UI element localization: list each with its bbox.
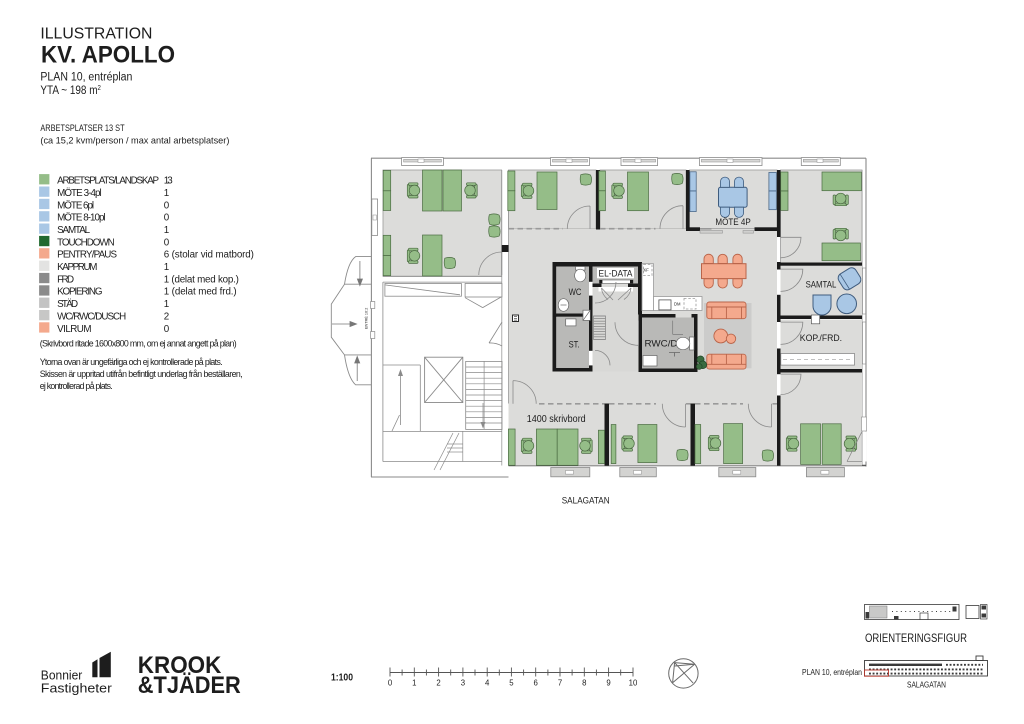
svg-text:YTA ~ 198 m2: YTA ~ 198 m2: [40, 85, 101, 97]
svg-text:SALAGATAN: SALAGATAN: [562, 496, 610, 507]
svg-text:3: 3: [461, 679, 465, 688]
svg-text:SAMTAL: SAMTAL: [57, 225, 91, 236]
svg-text:RWC/D: RWC/D: [645, 339, 678, 350]
svg-text:KOP./FRD.: KOP./FRD.: [800, 333, 842, 344]
svg-text:0: 0: [164, 200, 170, 211]
svg-text:6 (stolar vid matbord): 6 (stolar vid matbord): [164, 250, 254, 261]
svg-text:(Skrivbord ritade 1600x800 mm,: (Skrivbord ritade 1600x800 mm, om ej ann…: [40, 339, 237, 349]
svg-text:KF: KF: [644, 268, 650, 273]
svg-text:ORIENTERINGSFIGUR: ORIENTERINGSFIGUR: [865, 631, 967, 645]
svg-text:5: 5: [509, 679, 514, 688]
svg-text:STÄD: STÄD: [57, 299, 78, 310]
svg-text:9: 9: [606, 679, 610, 688]
svg-text:VILRUM: VILRUM: [57, 324, 91, 335]
svg-text:KOPIERING: KOPIERING: [57, 287, 102, 298]
svg-text:MÖTE 6pl: MÖTE 6pl: [57, 200, 94, 211]
svg-text:Fastigheter: Fastigheter: [41, 682, 112, 696]
svg-text:1: 1: [412, 679, 416, 688]
svg-text:MÖTE 4P: MÖTE 4P: [715, 217, 750, 228]
svg-text:Bonnier: Bonnier: [41, 668, 83, 682]
svg-text:FRD: FRD: [57, 274, 74, 285]
svg-text:SALAGATAN: SALAGATAN: [907, 681, 946, 690]
svg-text:6: 6: [534, 679, 538, 688]
svg-text:13: 13: [164, 176, 174, 187]
svg-text:ILLUSTRATION: ILLUSTRATION: [40, 26, 152, 43]
svg-text:ARBETSPLATSER 13 ST: ARBETSPLATSER 13 ST: [40, 122, 124, 133]
svg-text:0: 0: [164, 237, 170, 248]
svg-text:2: 2: [436, 679, 440, 688]
svg-text:ARBETSPLATS/LANDSKAP: ARBETSPLATS/LANDSKAP: [57, 176, 159, 187]
svg-text:Ytorna ovan är ungefärliga och: Ytorna ovan är ungefärliga och ej kontro…: [40, 357, 223, 367]
svg-text:&TJÄDER: &TJÄDER: [138, 672, 241, 699]
svg-text:MÖTE 8-10pl: MÖTE 8-10pl: [57, 213, 106, 224]
svg-text:7: 7: [558, 679, 562, 688]
svg-text:1: 1: [164, 262, 169, 273]
svg-text:PLAN 10, entréplan: PLAN 10, entréplan: [802, 667, 862, 677]
svg-text:1 (delat med kop.): 1 (delat med kop.): [164, 274, 239, 285]
svg-text:SAMTAL: SAMTAL: [806, 279, 837, 290]
svg-text:1:100: 1:100: [331, 673, 353, 684]
svg-text:1 (delat med frd.): 1 (delat med frd.): [164, 287, 237, 298]
svg-text:1: 1: [164, 299, 169, 310]
svg-text:TOUCHDOWN: TOUCHDOWN: [57, 237, 115, 248]
svg-text:1: 1: [164, 188, 169, 199]
svg-text:WC/RWC/DUSCH: WC/RWC/DUSCH: [57, 311, 126, 322]
svg-text:0: 0: [388, 679, 393, 688]
svg-text:1400 skrivbord: 1400 skrivbord: [527, 414, 586, 425]
svg-text:ST.: ST.: [569, 339, 580, 349]
svg-text:1: 1: [164, 225, 169, 236]
svg-text:WC: WC: [569, 287, 582, 297]
svg-text:ej kontrollerad på plats.: ej kontrollerad på plats.: [40, 381, 113, 391]
svg-text:PLAN 10, entréplan: PLAN 10, entréplan: [40, 71, 132, 83]
svg-text:KV. APOLLO: KV. APOLLO: [41, 42, 175, 69]
svg-text:4: 4: [485, 679, 490, 688]
svg-text:MÖTE 3-4pl: MÖTE 3-4pl: [57, 188, 102, 199]
svg-text:0: 0: [164, 324, 170, 335]
svg-text:0: 0: [164, 213, 170, 224]
svg-text:KAPPRUM: KAPPRUM: [57, 262, 97, 273]
svg-text:PENTRY/PAUS: PENTRY/PAUS: [57, 250, 117, 261]
svg-text:Skissen är uppritad utifrån be: Skissen är uppritad utifrån befintligt u…: [40, 369, 243, 379]
svg-text:10: 10: [629, 679, 638, 688]
svg-text:EL-DATA: EL-DATA: [599, 269, 634, 280]
svg-text:DM: DM: [674, 302, 681, 307]
svg-text:ENTRÉ 10:2: ENTRÉ 10:2: [364, 308, 369, 329]
svg-text:2: 2: [164, 311, 169, 322]
svg-text:8: 8: [582, 679, 586, 688]
svg-text:(ca 15,2 kvm/person / max anta: (ca 15,2 kvm/person / max antal arbetspl…: [40, 135, 229, 146]
